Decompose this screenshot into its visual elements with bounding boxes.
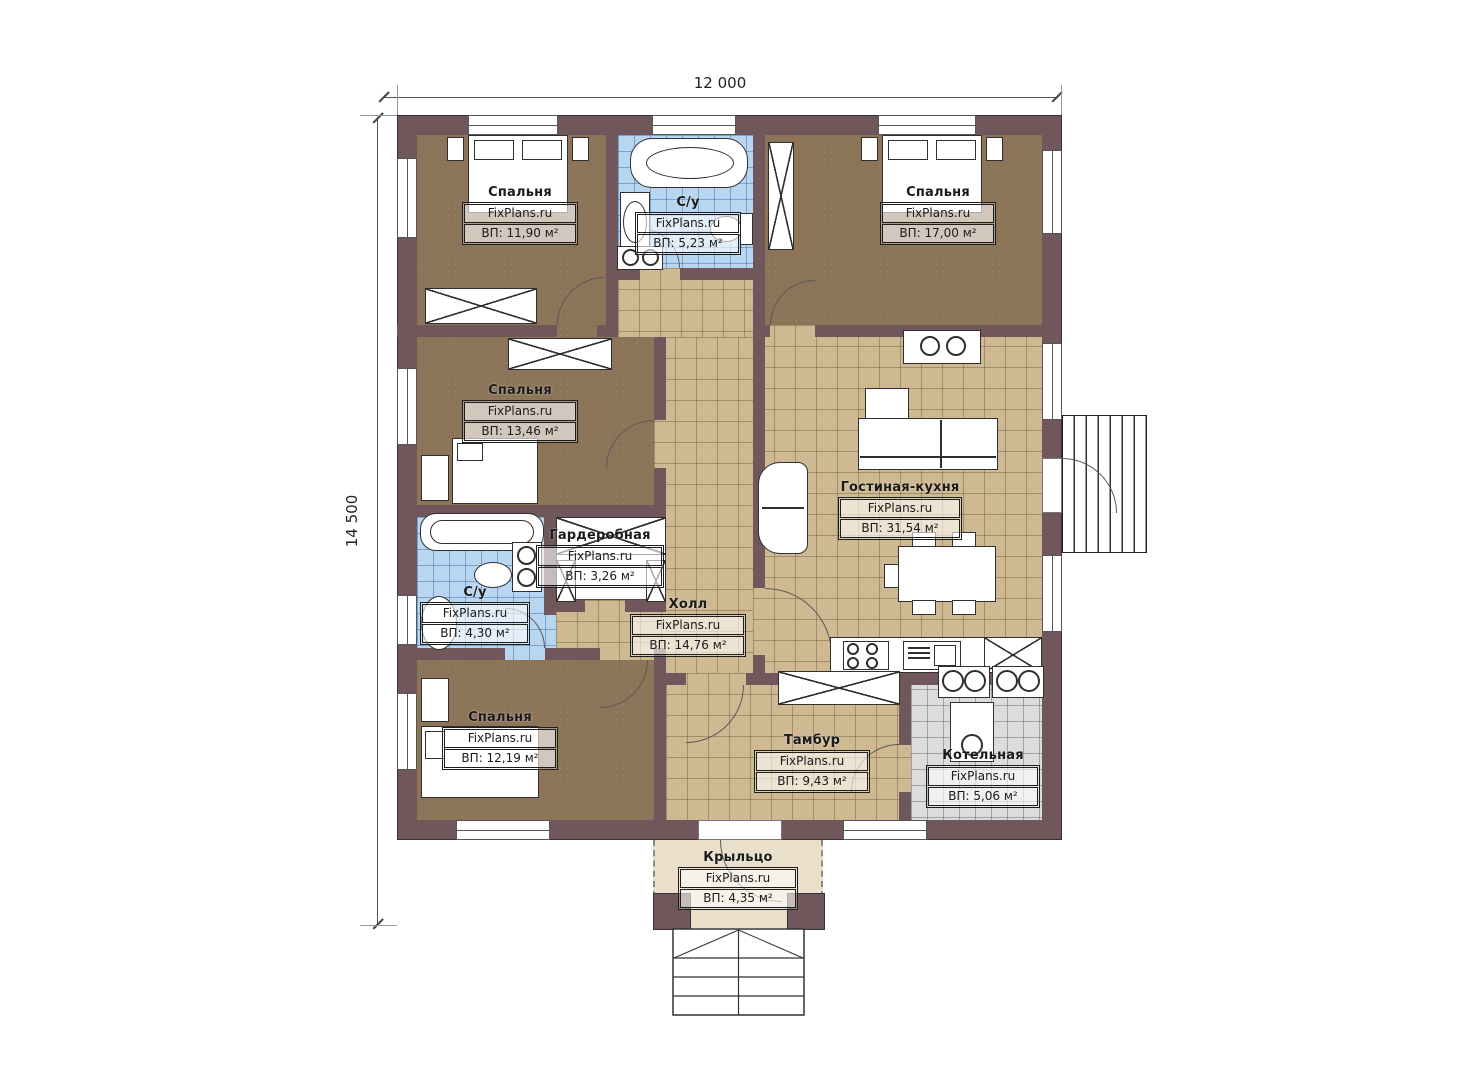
window (397, 693, 417, 770)
burner (866, 643, 878, 655)
chair-icon (912, 600, 936, 615)
room-name: С/у (420, 585, 530, 600)
area-label: ВП: 14,76 м² (632, 636, 744, 655)
appliance-dial (996, 670, 1018, 692)
room-info-box: FixPlans.ru ВП: 3,26 м² (536, 545, 664, 588)
brand-label: FixPlans.ru (840, 499, 960, 518)
sofa-seam (940, 420, 942, 468)
washer-drum (517, 546, 536, 565)
nightstand-icon (861, 137, 878, 161)
chair-icon (952, 600, 976, 615)
wall-segment (666, 673, 686, 685)
pillow-icon (457, 443, 483, 461)
window (1042, 555, 1062, 632)
dimension-line-top (383, 97, 1057, 98)
room-info-box: FixPlans.ru ВП: 4,30 м² (420, 602, 530, 645)
nightstand-icon (986, 137, 1003, 161)
room-info-box: FixPlans.ru ВП: 4,35 м² (678, 867, 798, 910)
pillow-icon (474, 140, 514, 160)
toilet-tank (740, 213, 753, 245)
room-name: Спальня (462, 383, 578, 398)
room-label-bathroom-lower: С/у FixPlans.ru ВП: 4,30 м² (420, 585, 530, 645)
room-label-bedroom-bottom-left: Спальня FixPlans.ru ВП: 12,19 м² (442, 710, 558, 770)
room-name: Крыльцо (678, 850, 798, 865)
burner (847, 643, 859, 655)
room-label-vestibule: Тамбур FixPlans.ru ВП: 9,43 м² (754, 733, 870, 793)
room-label-wardrobe: Гардеробная FixPlans.ru ВП: 3,26 м² (536, 528, 664, 588)
front-door-opening (698, 820, 782, 840)
wardrobe-cabinet-icon (768, 142, 794, 250)
appliance-dial (1018, 670, 1040, 692)
area-label: ВП: 4,35 м² (680, 889, 796, 908)
wall-segment (417, 648, 505, 660)
wall-segment (753, 655, 765, 673)
brand-label: FixPlans.ru (422, 604, 528, 623)
room-label-bathroom-top: С/у FixPlans.ru ВП: 5,23 м² (635, 195, 741, 255)
room-label-bedroom-top-right: Спальня FixPlans.ru ВП: 17,00 м² (880, 185, 996, 245)
wall-segment (545, 648, 600, 660)
room-name: Спальня (462, 185, 578, 200)
room-info-box: FixPlans.ru ВП: 12,19 м² (442, 727, 558, 770)
wardrobe-cabinet-icon (508, 338, 612, 370)
appliance-dial (942, 670, 964, 692)
dimension-tick (372, 112, 383, 123)
room-info-box: FixPlans.ru ВП: 31,54 м² (838, 497, 962, 540)
area-label: ВП: 4,30 м² (422, 624, 528, 643)
window (397, 595, 417, 645)
brand-label: FixPlans.ru (928, 767, 1038, 786)
wall-segment (680, 268, 753, 280)
dining-table-icon (898, 546, 996, 602)
room-info-box: FixPlans.ru ВП: 14,76 м² (630, 614, 746, 657)
extension-line (1061, 85, 1062, 115)
area-label: ВП: 12,19 м² (444, 749, 556, 768)
extension-line (360, 115, 397, 116)
burner (920, 336, 940, 356)
window (652, 115, 736, 135)
nightstand-icon (447, 137, 464, 161)
room-name: Тамбур (754, 733, 870, 748)
window (878, 115, 976, 135)
room-name: Котельная (926, 748, 1040, 763)
drainboard (908, 652, 930, 654)
armchair-seam (762, 507, 804, 509)
brand-label: FixPlans.ru (756, 752, 868, 771)
area-label: ВП: 5,23 м² (637, 234, 739, 253)
sofa-icon (858, 418, 998, 470)
burner (847, 657, 859, 669)
wall-segment (899, 685, 911, 745)
area-label: ВП: 5,06 м² (928, 787, 1038, 806)
area-label: ВП: 3,26 м² (538, 567, 662, 586)
wall-segment (397, 325, 557, 337)
extension-line (360, 925, 397, 926)
room-label-bedroom-middle-left: Спальня FixPlans.ru ВП: 13,46 м² (462, 383, 578, 443)
room-info-box: FixPlans.ru ВП: 13,46 м² (462, 400, 578, 443)
room-name: Гостиная-кухня (838, 480, 962, 495)
bathtub-basin (430, 520, 534, 544)
dimension-label-top: 12 000 (383, 74, 1057, 92)
window (1042, 150, 1062, 234)
room-label-boiler-room: Котельная FixPlans.ru ВП: 5,06 м² (926, 748, 1040, 808)
drainboard (908, 657, 930, 659)
dimension-line-left (377, 118, 378, 925)
chair-icon (884, 564, 899, 588)
brand-label: FixPlans.ru (680, 869, 796, 888)
dimension-tick (372, 918, 383, 929)
room-info-box: FixPlans.ru ВП: 5,23 м² (635, 212, 741, 255)
room-label-bedroom-top-left: Спальня FixPlans.ru ВП: 11,90 м² (462, 185, 578, 245)
window (456, 820, 550, 840)
brand-label: FixPlans.ru (637, 214, 739, 233)
wall-segment (654, 337, 666, 420)
area-label: ВП: 9,43 м² (756, 772, 868, 791)
pillow-icon (522, 140, 562, 160)
room-label-hall: Холл FixPlans.ru ВП: 14,76 м² (630, 597, 746, 657)
brand-label: FixPlans.ru (538, 547, 662, 566)
area-label: ВП: 13,46 м² (464, 422, 576, 441)
area-label: ВП: 31,54 м² (840, 519, 960, 538)
area-label: ВП: 17,00 м² (882, 224, 994, 243)
wall-segment (753, 337, 765, 588)
wall-segment (654, 648, 666, 820)
porch-steps (672, 928, 805, 1016)
window (1042, 343, 1062, 420)
room-name: Гардеробная (536, 528, 664, 543)
burner (946, 336, 966, 356)
appliance-dial (964, 670, 986, 692)
room-info-box: FixPlans.ru ВП: 17,00 м² (880, 202, 996, 245)
window (468, 115, 558, 135)
fireplace-icon (903, 330, 981, 364)
wall-segment (606, 135, 618, 337)
area-label: ВП: 11,90 м² (464, 224, 576, 243)
nightstand-icon (572, 137, 589, 161)
wall-segment (899, 792, 911, 820)
brand-label: FixPlans.ru (882, 204, 994, 223)
bathtub-basin (646, 147, 734, 179)
room-label-porch: Крыльцо FixPlans.ru ВП: 4,35 м² (678, 850, 798, 910)
room-info-box: FixPlans.ru ВП: 11,90 м² (462, 202, 578, 245)
wall-segment (597, 325, 606, 337)
sink-basin (934, 645, 956, 666)
wall-segment (753, 325, 770, 337)
window (397, 368, 417, 445)
wall-segment (753, 135, 765, 337)
pillow-icon (888, 140, 928, 160)
window (843, 820, 927, 840)
brand-label: FixPlans.ru (464, 402, 576, 421)
room-label-living-kitchen: Гостиная-кухня FixPlans.ru ВП: 31,54 м² (838, 480, 962, 540)
dimension-label-left: 14 500 (343, 476, 361, 566)
room-name: С/у (635, 195, 741, 210)
nightstand-icon (421, 455, 449, 501)
burner (866, 657, 878, 669)
room-info-box: FixPlans.ru ВП: 5,06 м² (926, 765, 1040, 808)
sofa-seam (860, 456, 996, 458)
room-info-box: FixPlans.ru ВП: 9,43 м² (754, 750, 870, 793)
room-name: Спальня (880, 185, 996, 200)
wardrobe-cabinet-icon (425, 288, 537, 324)
wall-segment (654, 468, 666, 505)
drainboard (908, 647, 930, 649)
wardrobe-cabinet-icon (778, 671, 900, 705)
floor-plan: 12 000 14 500 (0, 0, 1473, 1080)
brand-label: FixPlans.ru (464, 204, 576, 223)
side-door-opening (1042, 458, 1062, 513)
pillow-icon (936, 140, 976, 160)
window (397, 158, 417, 238)
room-name: Холл (630, 597, 746, 612)
room-name: Спальня (442, 710, 558, 725)
brand-label: FixPlans.ru (632, 616, 744, 635)
brand-label: FixPlans.ru (444, 729, 556, 748)
